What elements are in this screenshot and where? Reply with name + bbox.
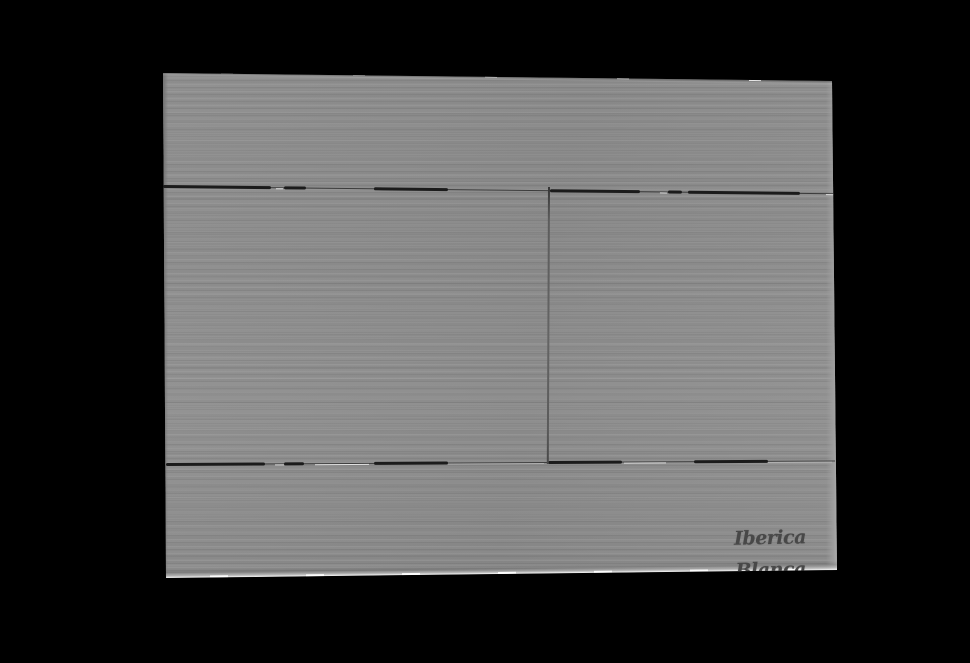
groove-highlight bbox=[276, 188, 283, 189]
flush-plate: Iberica Blanca bbox=[0, 0, 970, 663]
product-stage: Iberica Blanca bbox=[0, 0, 970, 663]
center-divider-groove bbox=[547, 187, 550, 464]
groove-segment bbox=[163, 185, 271, 189]
left-flush-button[interactable] bbox=[164, 188, 548, 462]
groove-segment bbox=[284, 462, 304, 465]
groove-highlight bbox=[275, 464, 284, 465]
groove-segment bbox=[668, 190, 682, 193]
groove-segment bbox=[550, 189, 640, 193]
groove-segment bbox=[694, 460, 768, 463]
groove-highlight bbox=[315, 464, 369, 465]
groove-segment bbox=[374, 187, 448, 191]
groove-segment bbox=[166, 462, 265, 466]
top-edge-shine bbox=[163, 72, 835, 82]
groove-highlight bbox=[624, 462, 666, 463]
right-flush-button[interactable] bbox=[551, 190, 833, 460]
groove-highlight bbox=[660, 192, 667, 193]
groove-segment bbox=[688, 191, 800, 195]
groove-segment bbox=[284, 186, 306, 189]
groove-highlight bbox=[768, 462, 832, 463]
groove-segment bbox=[548, 461, 622, 464]
groove-segment bbox=[374, 462, 448, 465]
groove-highlight bbox=[448, 463, 544, 465]
groove-highlight bbox=[826, 194, 835, 195]
plate-top-edge-bevel bbox=[163, 72, 835, 85]
brand-logo: Iberica Blanca bbox=[700, 521, 841, 558]
